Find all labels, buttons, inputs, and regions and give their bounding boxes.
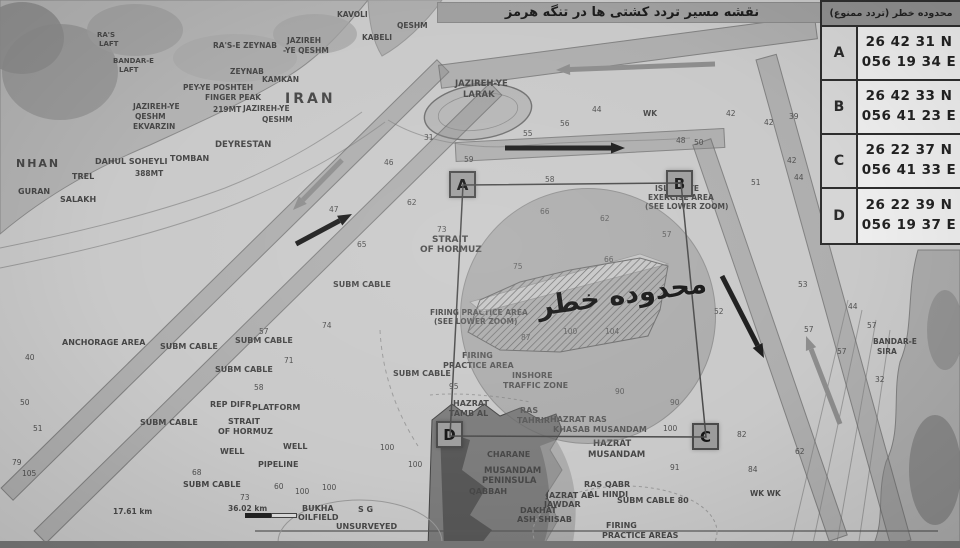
map-label: JAZIREH-YE xyxy=(243,105,290,113)
depth-sounding: 59 xyxy=(464,156,474,164)
map-label: BANDAR-E xyxy=(113,58,154,65)
depth-sounding: 84 xyxy=(748,466,758,474)
danger-zone-circle xyxy=(460,188,716,444)
map-label: QESHM xyxy=(262,116,293,124)
map-label: KABELI xyxy=(362,34,392,42)
depth-sounding: 68 xyxy=(192,469,202,477)
danger-table: محدوده خطر (تردد ممنوع) A 26 42 31 N 056… xyxy=(820,0,960,245)
latitude: 26 42 31 N xyxy=(866,33,953,53)
map-label: FIRING xyxy=(606,522,637,530)
map-label: WK xyxy=(643,110,657,118)
map-label: PRACTICE AREAS xyxy=(602,532,678,540)
chart-title: نقشه مسیر تردد کشتی ها در تنگه هرمز xyxy=(437,2,827,23)
depth-sounding: 51 xyxy=(751,179,761,187)
point-coordinates: 26 42 33 N 056 41 23 E xyxy=(858,81,960,133)
map-label: -YE QESHM xyxy=(283,47,329,55)
point-letter: B xyxy=(822,81,858,133)
map-label: BANDAR-E xyxy=(873,338,917,346)
map-label: JAZIREH xyxy=(287,37,321,45)
point-coordinates: 26 42 31 N 056 19 34 E xyxy=(858,27,960,79)
map-label: 17.61 km xyxy=(113,508,152,516)
depth-sounding: 74 xyxy=(322,322,332,330)
depth-sounding: 58 xyxy=(254,384,264,392)
map-label: SUBM CABLE xyxy=(393,370,451,378)
depth-sounding: 57 xyxy=(259,328,269,336)
map-label: QABBAH xyxy=(469,488,507,496)
depth-sounding: 51 xyxy=(33,425,43,433)
depth-sounding: 100 xyxy=(663,425,677,433)
map-label: STRAIT xyxy=(228,418,260,426)
map-label: DAKHAT xyxy=(520,507,557,515)
scale-bar-light xyxy=(271,513,297,518)
map-label: EKVARZIN xyxy=(133,123,175,131)
map-label: TOMBAN xyxy=(170,155,209,163)
depth-sounding: 57 xyxy=(867,322,877,330)
danger-table-header: محدوده خطر (تردد ممنوع) xyxy=(822,2,960,27)
depth-sounding: 62 xyxy=(407,199,417,207)
depth-sounding: 73 xyxy=(437,226,447,234)
scale-bar-dark xyxy=(245,513,271,518)
map-label: PLATFORM xyxy=(252,404,300,412)
depth-sounding: 95 xyxy=(449,383,459,391)
map-label: SALAKH xyxy=(60,196,96,204)
photo-bottom-edge xyxy=(0,541,960,548)
depth-sounding: 73 xyxy=(240,494,250,502)
map-label: CHARANE xyxy=(487,451,530,459)
map-label: JAZIREH-YE xyxy=(133,103,180,111)
map-label: QESHM xyxy=(397,22,428,30)
map-label: SUBM CABLE xyxy=(333,281,391,289)
depth-sounding: 44 xyxy=(848,303,858,311)
point-letter: A xyxy=(822,27,858,79)
map-label: SUBM CABLE xyxy=(183,481,241,489)
depth-sounding: 60 xyxy=(274,483,284,491)
depth-sounding: 100 xyxy=(295,488,309,496)
depth-sounding: 79 xyxy=(12,459,22,467)
map-label: REP DIFR xyxy=(210,401,252,409)
longitude: 056 19 34 E xyxy=(862,53,957,73)
map-label: BUKHA xyxy=(302,505,334,513)
shipping-lane xyxy=(455,128,726,162)
map-label: UNSURVEYED xyxy=(336,523,397,531)
map-label: TREL xyxy=(72,173,94,181)
depth-sounding: 42 xyxy=(764,119,774,127)
map-label: ZEYNAB xyxy=(230,68,264,76)
depth-sounding: 50 xyxy=(20,399,30,407)
map-label: 388MT xyxy=(135,170,163,178)
map-label: TAMB AL xyxy=(449,410,488,418)
depth-sounding: 100 xyxy=(408,461,422,469)
map-label: RA'S-E ZEYNAB xyxy=(213,42,277,50)
map-label: RA'S xyxy=(97,32,115,39)
latitude: 26 22 37 N xyxy=(866,141,953,161)
map-label: FINGER PEAK xyxy=(205,94,261,102)
corner-marker-C: C xyxy=(692,423,719,450)
depth-sounding: 50 xyxy=(694,139,704,147)
map-label: SIRA xyxy=(877,348,897,356)
map-label: WK WK xyxy=(750,490,781,498)
map-label: SUBM CABLE xyxy=(235,337,293,345)
map-label: NHAN xyxy=(16,158,60,169)
depth-sounding: 55 xyxy=(523,130,533,138)
table-row: C 26 22 37 N 056 41 33 E xyxy=(822,135,960,189)
point-letter: C xyxy=(822,135,858,187)
longitude: 056 41 33 E xyxy=(862,161,957,181)
map-label: RAS QABR xyxy=(584,481,630,489)
map-label: SUBM CABLE xyxy=(140,419,198,427)
map-label: STRAIT xyxy=(432,236,468,245)
depth-sounding: 57 xyxy=(837,348,847,356)
depth-sounding: 46 xyxy=(384,159,394,167)
point-letter: D xyxy=(822,189,858,243)
map-label: 36.02 km xyxy=(228,505,267,513)
corner-marker-B: B xyxy=(666,170,693,197)
corner-marker-A: A xyxy=(449,171,476,198)
depth-sounding: 40 xyxy=(25,354,35,362)
depth-sounding: 53 xyxy=(798,281,808,289)
map-label: LARAK xyxy=(463,91,495,100)
map-label: IRAN xyxy=(285,92,336,106)
depth-sounding: 31 xyxy=(424,134,434,142)
map-label: LAFT xyxy=(119,67,138,74)
depth-sounding: 71 xyxy=(284,357,294,365)
map-label: KAVOLI xyxy=(337,11,368,19)
danger-table-body: A 26 42 31 N 056 19 34 E B 26 42 33 N 05… xyxy=(822,27,960,243)
map-label: KAMKAN xyxy=(262,76,299,84)
depth-sounding: 105 xyxy=(22,470,36,478)
table-row: B 26 42 33 N 056 41 23 E xyxy=(822,81,960,135)
depth-sounding: 62 xyxy=(795,448,805,456)
point-coordinates: 26 22 37 N 056 41 33 E xyxy=(858,135,960,187)
table-row: A 26 42 31 N 056 19 34 E xyxy=(822,27,960,81)
depth-sounding: 44 xyxy=(794,174,804,182)
depth-sounding: 100 xyxy=(380,444,394,452)
map-label: PEY-YE POSHTEH xyxy=(183,84,253,92)
depth-sounding: 48 xyxy=(676,137,686,145)
map-label: HAZRAT xyxy=(453,400,489,408)
point-coordinates: 26 22 39 N 056 19 37 E xyxy=(858,189,960,243)
map-label: OF HORMUZ xyxy=(218,428,273,436)
depth-sounding: 91 xyxy=(670,464,680,472)
map-label: SUBM CABLE xyxy=(215,366,273,374)
depth-sounding: 47 xyxy=(329,206,339,214)
map-label: GURAN xyxy=(18,188,50,196)
map-label: WELL xyxy=(220,448,244,456)
latitude: 26 42 33 N xyxy=(866,87,953,107)
map-label: SUBM CABLE xyxy=(160,343,218,351)
map-label: DEYRESTAN xyxy=(215,141,271,150)
map-label: MUSANDAM xyxy=(484,467,541,476)
map-label: AL HINDI xyxy=(588,491,628,499)
depth-sounding: 39 xyxy=(789,113,799,121)
map-label: 219MT xyxy=(213,106,241,114)
depth-sounding: 42 xyxy=(787,157,797,165)
depth-sounding: 32 xyxy=(875,376,885,384)
longitude: 056 19 37 E xyxy=(862,216,957,236)
map-label: WELL xyxy=(283,443,307,451)
map-label: PIPELINE xyxy=(258,461,298,469)
map-label: DAHUL SOHEYLI xyxy=(95,158,168,166)
map-label: PENINSULA xyxy=(482,477,536,486)
depth-sounding: 44 xyxy=(592,106,602,114)
map-label: ASH SHISAB xyxy=(517,516,572,524)
longitude: 056 41 23 E xyxy=(862,107,957,127)
latitude: 26 22 39 N xyxy=(866,196,953,216)
depth-sounding: 82 xyxy=(737,431,747,439)
depth-sounding: 100 xyxy=(322,484,336,492)
depth-sounding: 58 xyxy=(545,176,555,184)
depth-sounding: 56 xyxy=(560,120,570,128)
map-label: S G xyxy=(358,506,373,514)
map-label: OF HORMUZ xyxy=(420,246,482,255)
map-label: JAZIREH-YE xyxy=(455,80,508,89)
map-label: LAFT xyxy=(99,41,118,48)
map-label: JAZRAT AL xyxy=(546,492,592,500)
table-row: D 26 22 39 N 056 19 37 E xyxy=(822,189,960,243)
map-label: QESHM xyxy=(135,113,166,121)
map-label: MUSANDAM xyxy=(588,451,645,460)
depth-sounding: 42 xyxy=(726,110,736,118)
hormuz-chart-screenshot: IRANSTRAITOF HORMUZSTRAITOF HORMUZREP DI… xyxy=(0,0,960,548)
map-label: ANCHORAGE AREA xyxy=(62,339,145,347)
map-label: OILFIELD xyxy=(298,514,339,522)
corner-marker-D: D xyxy=(436,421,463,448)
depth-sounding: 65 xyxy=(357,241,367,249)
depth-sounding: 57 xyxy=(804,326,814,334)
